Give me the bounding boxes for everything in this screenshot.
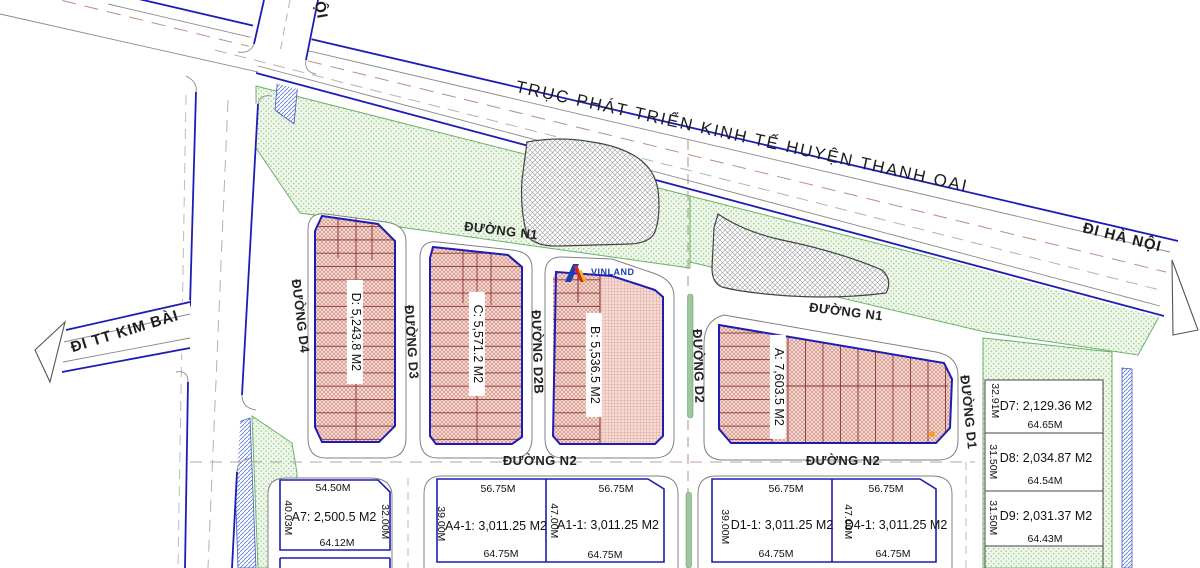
plot-d4-1-bottom-dim: 64.75M (863, 549, 923, 561)
plot-d4-1-top-dim: 56.75M (856, 484, 916, 496)
master-plan-map: TRỤC PHÁT TRIỂN KINH TẾ HUYỆN THANH OAI … (0, 0, 1200, 568)
plot-d9-area-label: D9: 2,031.37 M2 (986, 510, 1106, 524)
plot-d1-1-area-label: D1-1: 3,011.25 M2 (722, 519, 842, 533)
plot-d1-1-bottom-dim: 64.75M (746, 549, 806, 561)
plot-d8-area-label: D8: 2,034.87 M2 (986, 452, 1106, 466)
zone-b-area-label: B: 5,536.5 M2 (586, 313, 602, 417)
road-d2-label: ĐƯỜNG D2 (689, 323, 706, 409)
road-d2b-label: ĐƯỜNG D2B (528, 304, 546, 400)
vinland-logo-text: VINLAND (591, 268, 635, 278)
plot-a4-1-bottom-dim: 64.75M (471, 549, 531, 561)
plot-a1-1-top-dim: 56.75M (586, 484, 646, 496)
zone-c-area-label: C: 5,571.2 M2 (469, 292, 485, 396)
zone-d-area-label: D: 5,243.8 M2 (347, 280, 363, 384)
plot-a7-left-dim: 40.03M (281, 496, 293, 540)
plot-a7-top-dim: 54.50M (303, 483, 363, 495)
marker-dot (929, 431, 935, 437)
plot-d8-width-dim: 64.54M (1015, 476, 1075, 488)
plot-a7-right-dim: 32.00M (378, 500, 390, 544)
road-n2-right-label: ĐƯỜNG N2 (803, 454, 883, 468)
plot-a4-1-area-label: A4-1: 3,011.25 M2 (436, 520, 556, 534)
plot-a4-1-left-dim: 39.00M (434, 502, 446, 546)
plot-d4-1-left-dim: 47.00M (841, 500, 853, 544)
plot-a1-1-area-label: A1-1: 3,011.25 M2 (548, 519, 668, 533)
road-n2-left-label: ĐƯỜNG N2 (500, 454, 580, 468)
plot-a7-bottom-dim: 64.12M (307, 538, 367, 550)
plot-d4-1-area-label: D4-1: 3,011.25 M2 (836, 519, 956, 533)
plot-d7-area-label: D7: 2,129.36 M2 (986, 400, 1106, 414)
plot-a1-1-bottom-dim: 64.75M (575, 550, 635, 562)
plot-a1-1-left-dim: 47.00M (547, 499, 559, 543)
vinland-logo-icon (568, 264, 588, 282)
plot-d7-width-dim: 64.65M (1015, 420, 1075, 432)
plot-d9-side-dim: 31.50M (986, 496, 998, 540)
plot-d1-1-top-dim: 56.75M (756, 484, 816, 496)
plot-a4-1-top-dim: 56.75M (468, 484, 528, 496)
plot-d7-side-dim: 32.91M (988, 379, 1000, 423)
zone-a-area-label: A: 7,603.5 M2 (770, 335, 786, 439)
arrow-hanoi (1172, 260, 1198, 335)
plot-d1-1-left-dim: 39.00M (718, 505, 730, 549)
direction-partial-label: ỘI (310, 0, 330, 24)
plot-d9-width-dim: 64.43M (1015, 534, 1075, 546)
vinland-logo: VINLAND (568, 264, 635, 282)
plot-d8-side-dim: 31.50M (986, 440, 998, 484)
